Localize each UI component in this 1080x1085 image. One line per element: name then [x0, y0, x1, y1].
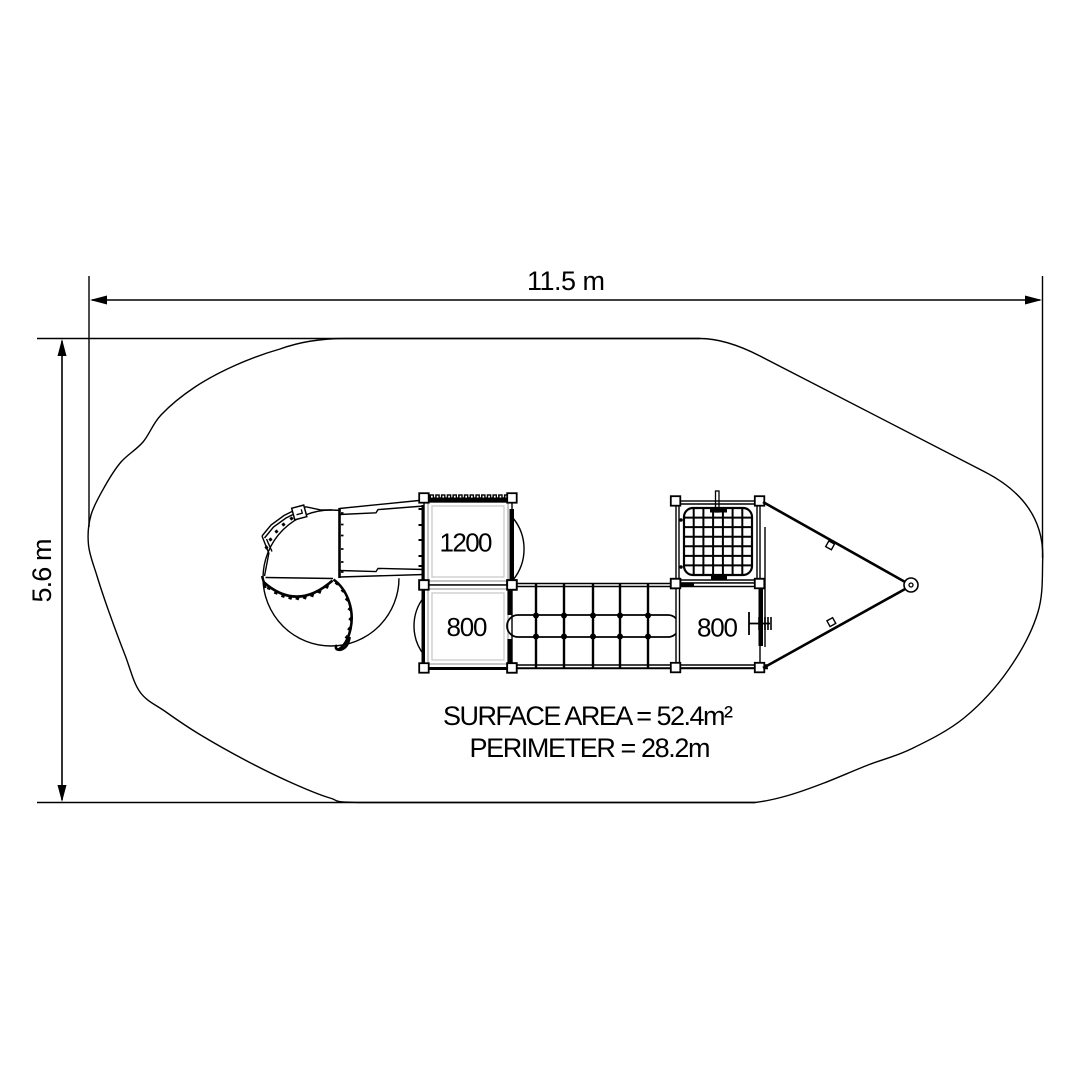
svg-text:PERIMETER = 28.2m: PERIMETER = 28.2m: [470, 733, 711, 763]
svg-text:11.5 m: 11.5 m: [527, 266, 605, 296]
svg-text:5.6 m: 5.6 m: [27, 539, 57, 603]
svg-text:800: 800: [697, 613, 738, 643]
svg-text:800: 800: [447, 612, 488, 642]
svg-text:1200: 1200: [440, 528, 493, 558]
svg-text:SURFACE AREA = 52.4m²: SURFACE AREA = 52.4m²: [443, 701, 733, 731]
